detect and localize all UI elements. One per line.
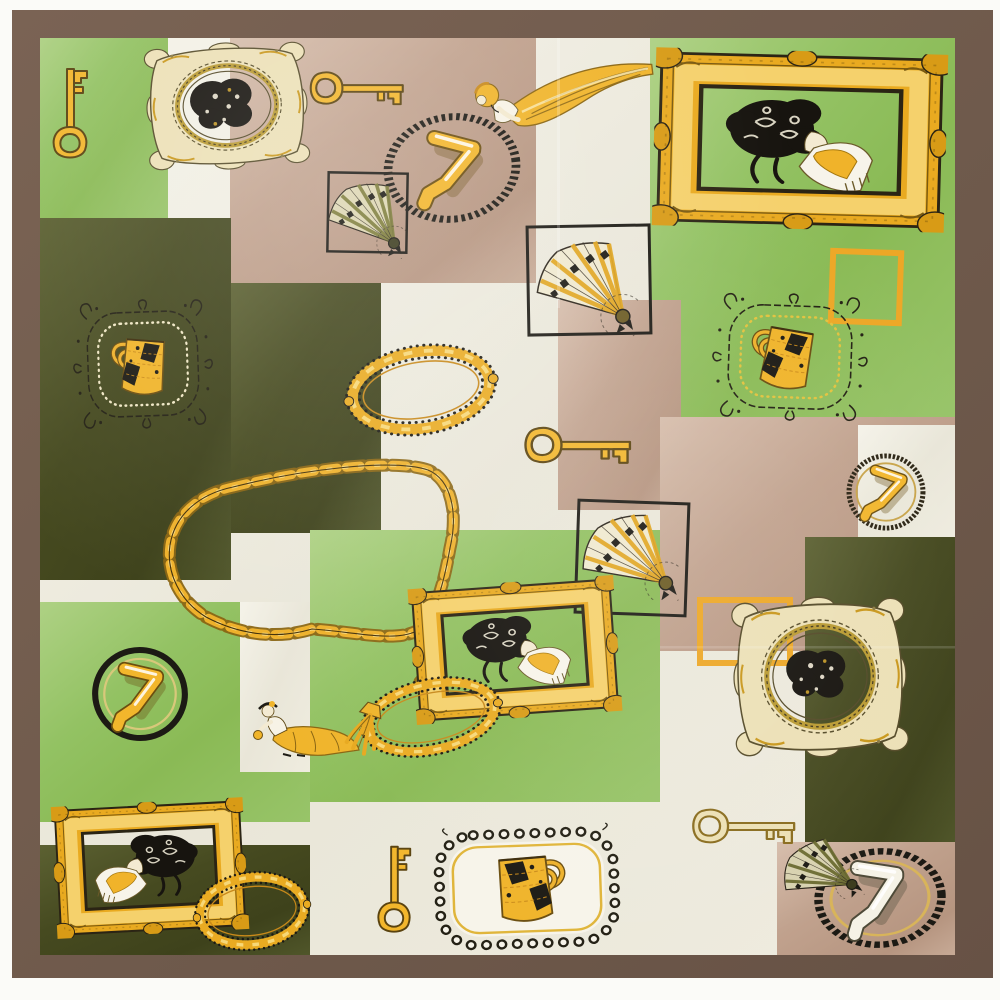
scarf-image [0, 0, 1000, 1000]
fabric-crease-horizontal [660, 646, 955, 649]
scarf-product-photo [0, 0, 1000, 1000]
satin-sheen-secondary [40, 38, 955, 955]
fabric-crease-vertical [557, 38, 560, 308]
